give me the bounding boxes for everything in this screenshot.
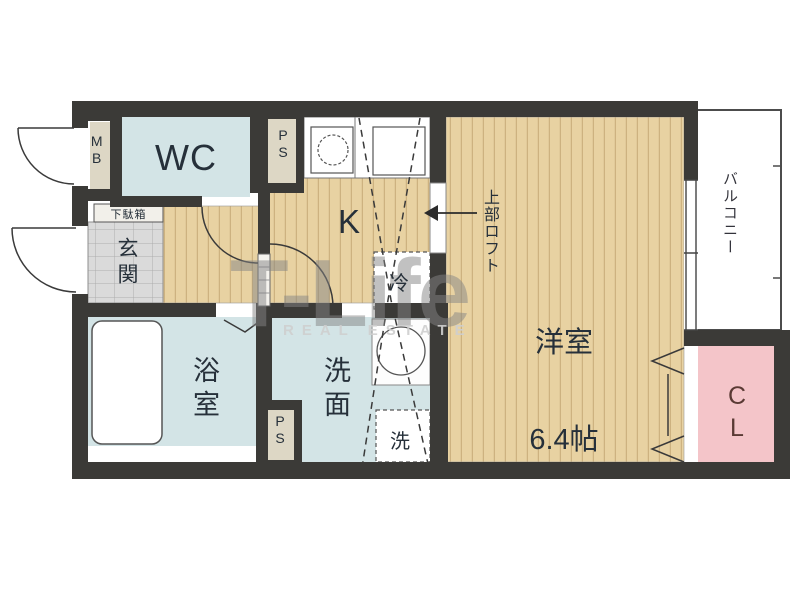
wall-top xyxy=(72,101,698,117)
wall-kitchen-room-upper xyxy=(430,117,446,183)
pipe-space-top-label: PS xyxy=(275,127,291,161)
refrigerator-space-label: 冷 xyxy=(389,267,409,296)
washroom-label: 洗面 xyxy=(316,356,355,424)
bathtub xyxy=(92,321,162,444)
entrance-label: 玄関 xyxy=(111,237,141,289)
western-room-size: 6.4帖 xyxy=(500,424,628,456)
wall-bathroom-top xyxy=(72,303,216,317)
meter-box-label: MB xyxy=(89,133,104,167)
pipe-space-bottom-label: PS xyxy=(272,413,288,447)
wall-left-upper xyxy=(72,101,88,128)
meter-box-door-arc xyxy=(18,128,74,184)
balcony-label: バルコニー xyxy=(719,171,740,256)
western-room-name: 洋室 xyxy=(500,327,628,359)
wall-window-top xyxy=(684,117,698,180)
wall-bottom xyxy=(72,462,790,479)
western-room-label: 洋室 6.4帖 xyxy=(500,262,628,522)
wc-label: WC xyxy=(134,137,238,179)
watermark-subtitle: REAL ESTATE xyxy=(283,322,473,339)
washer-space-label: 洗 xyxy=(390,425,410,454)
wall-left-mid xyxy=(72,186,88,226)
entrance-door-arc xyxy=(12,228,76,292)
upper-loft-annotation: 上部ロフト xyxy=(477,189,501,274)
shoe-cabinet-label: 下駄箱 xyxy=(94,206,163,222)
closet-label: CL xyxy=(722,382,751,446)
wall-closet-top xyxy=(684,330,790,346)
wall-left-lower xyxy=(72,294,88,468)
wall-mb-top xyxy=(88,108,112,121)
bathroom-deck xyxy=(88,446,258,462)
floorplan-canvas: T-Life REAL ESTATE WC MB PS PS 下駄箱 玄関 K … xyxy=(0,0,800,600)
wall-mb-bottom xyxy=(88,189,112,201)
kitchen-label: K xyxy=(338,203,360,241)
kitchen-sink-box xyxy=(311,127,353,173)
wall-closet-right xyxy=(774,346,790,462)
bathroom-label: 浴室 xyxy=(185,356,224,424)
wall-wc-left xyxy=(110,108,122,198)
